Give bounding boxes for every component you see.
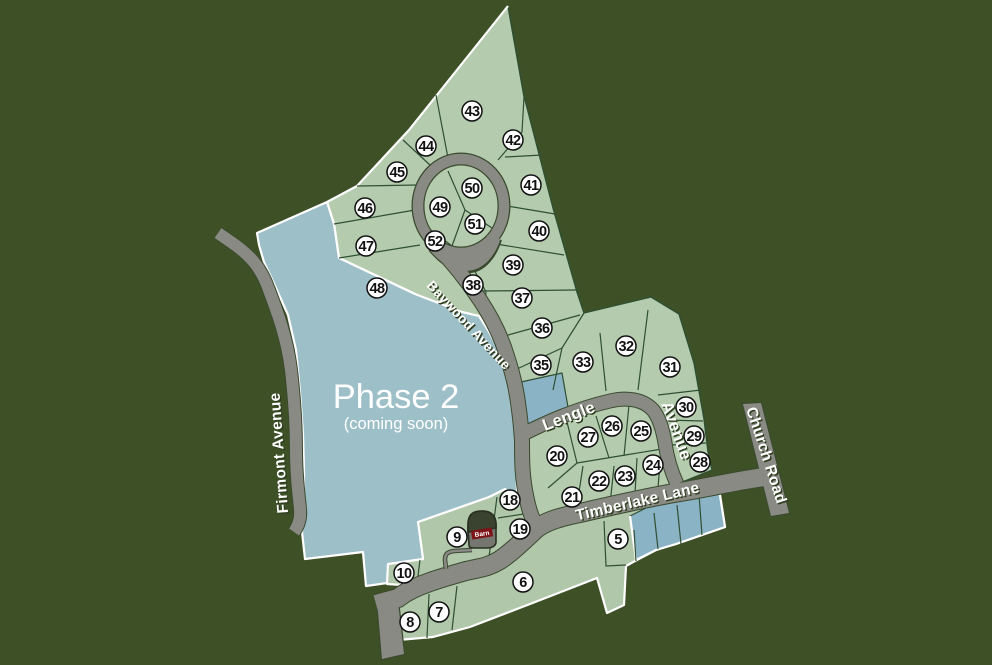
- svg-text:27: 27: [581, 430, 596, 446]
- svg-text:5: 5: [614, 532, 622, 548]
- svg-text:33: 33: [576, 355, 591, 371]
- svg-text:32: 32: [619, 339, 634, 355]
- svg-text:29: 29: [687, 429, 702, 445]
- svg-text:37: 37: [515, 291, 530, 307]
- svg-text:9: 9: [453, 530, 461, 546]
- svg-text:45: 45: [390, 165, 405, 181]
- svg-text:41: 41: [524, 178, 539, 194]
- svg-text:23: 23: [618, 469, 633, 485]
- svg-text:46: 46: [358, 201, 373, 217]
- svg-text:10: 10: [397, 566, 412, 582]
- svg-text:48: 48: [370, 281, 385, 297]
- svg-text:51: 51: [468, 217, 483, 233]
- svg-text:40: 40: [532, 224, 547, 240]
- svg-text:26: 26: [605, 419, 620, 435]
- svg-text:36: 36: [535, 321, 550, 337]
- svg-text:24: 24: [646, 458, 661, 474]
- svg-text:52: 52: [428, 234, 443, 250]
- svg-text:6: 6: [519, 575, 527, 591]
- svg-text:49: 49: [433, 200, 448, 216]
- svg-text:19: 19: [513, 522, 528, 538]
- svg-text:47: 47: [359, 239, 374, 255]
- svg-text:(coming soon): (coming soon): [344, 415, 449, 433]
- svg-text:22: 22: [592, 474, 607, 490]
- svg-text:7: 7: [435, 605, 443, 621]
- svg-text:28: 28: [693, 455, 708, 471]
- svg-text:Phase 2: Phase 2: [333, 378, 460, 416]
- svg-text:43: 43: [465, 104, 480, 120]
- svg-text:25: 25: [634, 424, 649, 440]
- svg-text:31: 31: [663, 360, 678, 376]
- svg-text:20: 20: [550, 449, 565, 465]
- svg-text:39: 39: [506, 258, 521, 274]
- svg-text:30: 30: [679, 400, 694, 416]
- svg-text:38: 38: [466, 278, 481, 294]
- svg-text:8: 8: [406, 615, 414, 631]
- svg-text:35: 35: [534, 358, 549, 374]
- svg-text:44: 44: [419, 139, 434, 155]
- svg-text:21: 21: [565, 490, 580, 506]
- svg-text:18: 18: [503, 493, 518, 509]
- svg-text:42: 42: [506, 133, 521, 149]
- svg-text:50: 50: [465, 181, 480, 197]
